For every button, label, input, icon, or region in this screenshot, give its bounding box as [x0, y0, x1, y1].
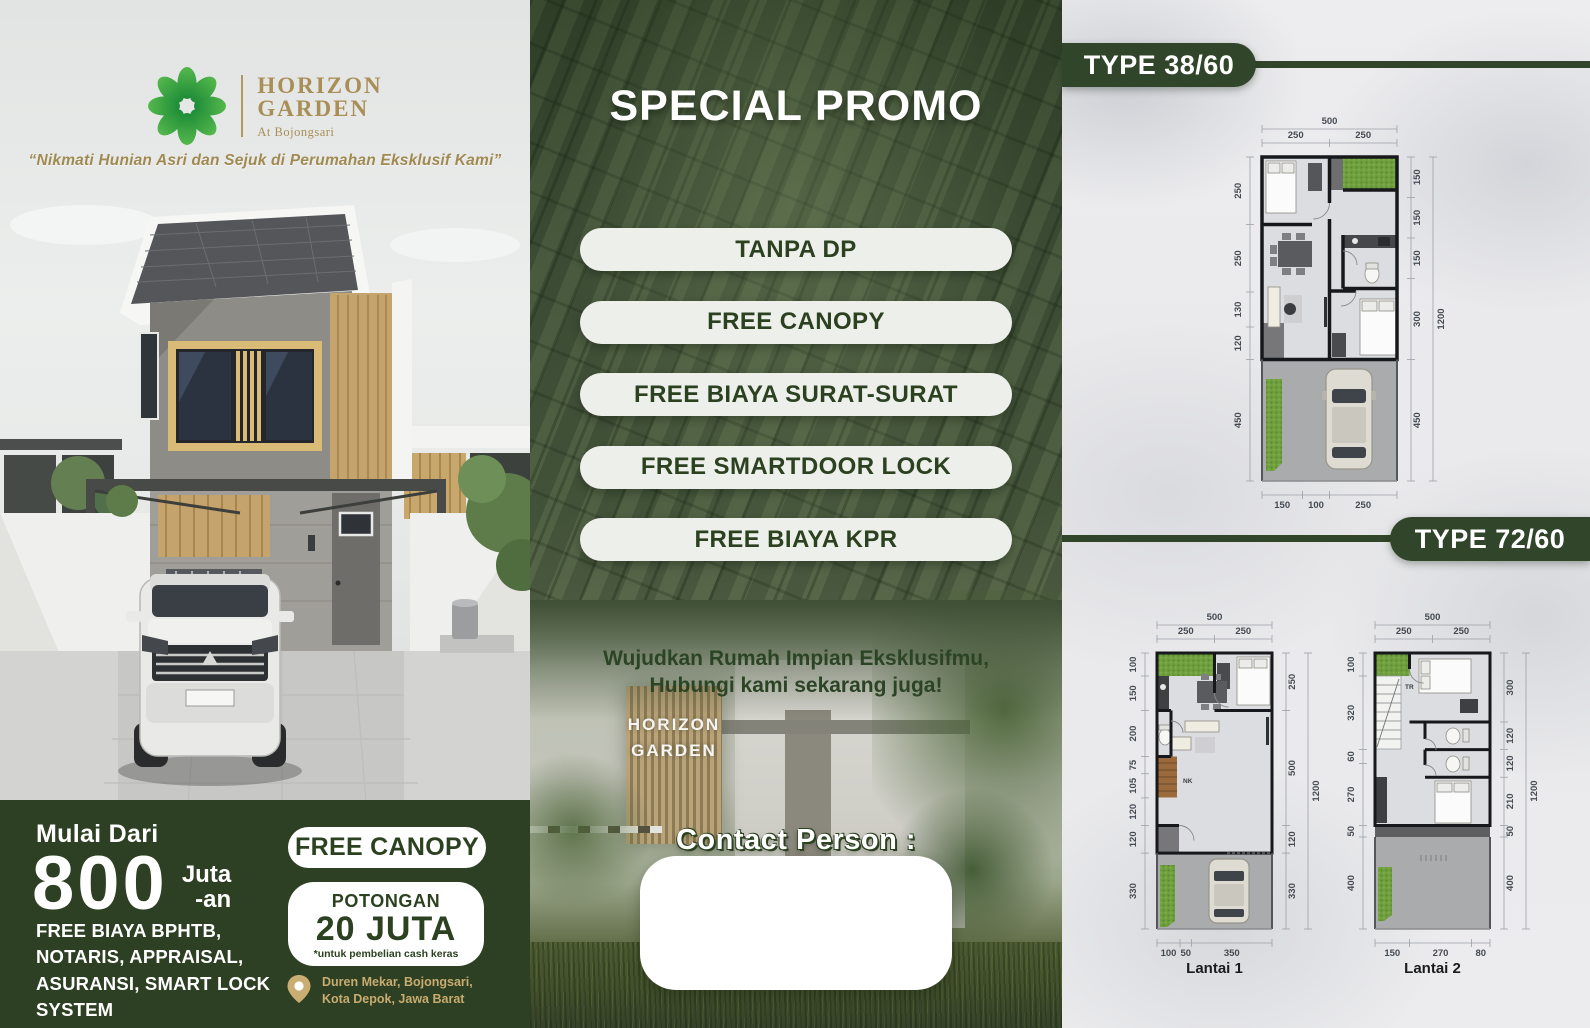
panel-left: HORIZON GARDEN At Bojongsari “Nikmati Hu…: [0, 0, 530, 1028]
dim-label: 330: [1287, 883, 1298, 899]
promo-pill-free-biaya-surat: FREE BIAYA SURAT-SURAT: [580, 373, 1012, 416]
price-unit-bottom: -an: [182, 887, 231, 912]
dim-label: 500: [1322, 116, 1338, 127]
dim-label: 120: [1233, 335, 1244, 351]
promo-pill-list: TANPA DP FREE CANOPY FREE BIAYA SURAT-SU…: [580, 228, 1012, 561]
panel-middle: HORIZON GARDEN SPECIAL PROMO TANPA DP FR…: [530, 0, 1062, 1028]
dim-label: 250: [1235, 626, 1251, 637]
dim-label: 150: [1384, 948, 1400, 959]
price-unit-top: Juta: [182, 861, 231, 888]
location-row: Duren Mekar, Bojongsari, Kota Depok, Jaw…: [286, 974, 492, 1008]
promo-title: SPECIAL PROMO: [530, 82, 1062, 131]
lantai-2-label: Lantai 2: [1404, 960, 1461, 977]
logo-text: HORIZON GARDEN At Bojongsari: [257, 74, 382, 139]
type-38-60-badge: TYPE 38/60: [1062, 43, 1256, 87]
free-canopy-pill: FREE CANOPY: [288, 827, 486, 868]
dim-label: 120: [1505, 755, 1516, 771]
promo-pill-tanpa-dp: TANPA DP: [580, 228, 1012, 271]
dim-label: 50: [1346, 826, 1357, 837]
dim-label: 250: [1396, 626, 1412, 637]
dim-label: 250: [1178, 626, 1194, 637]
logo-title-line1: HORIZON: [257, 74, 382, 97]
contact-card: [640, 856, 952, 990]
cta-text: Wujudkan Rumah Impian Eksklusifmu, Hubun…: [530, 645, 1062, 700]
flyer: HORIZON GARDEN At Bojongsari “Nikmati Hu…: [0, 0, 1590, 1028]
dim-label: 350: [1224, 948, 1240, 959]
dim-label: 200: [1128, 726, 1139, 742]
dim-label: 150: [1412, 250, 1423, 266]
dim-label: 320: [1346, 705, 1357, 721]
dim-label: 100: [1161, 948, 1177, 959]
contact-label: Contact Person :: [530, 824, 1062, 857]
brand-logo: HORIZON GARDEN At Bojongsari: [0, 66, 530, 146]
dim-label: 500: [1207, 612, 1223, 623]
badge-line-1: [1252, 61, 1590, 68]
floorplan-72-60-lantai-1: 500 250 250 100 150 200 75 105 120 120 3…: [1117, 609, 1337, 981]
dim-label: 250: [1288, 130, 1304, 141]
dim-label: 1200: [1436, 308, 1447, 329]
dim-label: 500: [1425, 612, 1441, 623]
dim-label: 250: [1233, 183, 1244, 199]
dim-label: 250: [1355, 500, 1371, 511]
dim-label: 1200: [1529, 780, 1540, 801]
location-pin-icon: [286, 974, 312, 1004]
cta-line1: Wujudkan Rumah Impian Eksklusifmu,: [530, 645, 1062, 672]
price-footer: Mulai Dari 800 Juta -an FREE BIAYA BPHTB…: [0, 800, 530, 1028]
dim-label: 105: [1128, 777, 1139, 794]
type-72-60-badge: TYPE 72/60: [1390, 517, 1590, 561]
dim-label: 300: [1412, 311, 1423, 327]
dim-label: 400: [1505, 875, 1516, 891]
dim-label: 100: [1308, 500, 1324, 511]
price-row: 800 Juta -an: [32, 846, 231, 922]
dim-label: 450: [1412, 412, 1423, 428]
dim-label: 250: [1355, 130, 1371, 141]
dim-label: 150: [1412, 210, 1423, 226]
discount-card: POTONGAN 20 JUTA *untuk pembelian cash k…: [288, 882, 484, 966]
logo-title-line2: GARDEN: [257, 97, 382, 120]
address-line2: Jawa Barat: [398, 992, 464, 1006]
cta-line2: Hubungi kami sekarang juga!: [530, 672, 1062, 699]
dim-label: 150: [1412, 169, 1423, 185]
address: Duren Mekar, Bojongsari, Kota Depok, Jaw…: [322, 974, 492, 1008]
logo-divider: [241, 75, 243, 137]
free-items-note: FREE BIAYA BPHTB, NOTARIS, APPRAISAL, AS…: [36, 918, 292, 1023]
price-value: 800: [32, 846, 168, 922]
dim-label: 80: [1476, 948, 1487, 959]
dim-label: 270: [1346, 787, 1357, 803]
dim-label: 270: [1433, 948, 1449, 959]
dim-label: 250: [1287, 674, 1298, 690]
dim-label: 100: [1128, 657, 1139, 673]
dim-label: 75: [1128, 759, 1139, 770]
promo-pill-free-biaya-kpr: FREE BIAYA KPR: [580, 518, 1012, 561]
dim-label: 60: [1346, 751, 1357, 762]
discount-note: *untuk pembelian cash keras: [314, 948, 459, 960]
dim-label: 50: [1180, 948, 1191, 959]
stair-label: TR: [1405, 684, 1414, 691]
floorplan-38-60: 500 250 250 250 250 130 120 450 150 150 …: [1220, 111, 1460, 523]
panel-right: TYPE 38/60 TYPE 72/60 500: [1062, 0, 1590, 1028]
stair-label: NK: [1183, 778, 1193, 785]
dim-label: 330: [1128, 883, 1139, 899]
dim-label: 250: [1233, 250, 1244, 266]
dim-label: 500: [1287, 760, 1298, 776]
dim-label: 120: [1505, 728, 1516, 744]
floorplan-72-60-lantai-2: 500 250 250 100 320 60 270 50 400 300 12…: [1335, 609, 1555, 981]
price-unit: Juta -an: [182, 862, 231, 912]
dim-label: 150: [1274, 500, 1290, 511]
logo-subtitle: At Bojongsari: [257, 126, 382, 139]
badge-line-2: [1062, 535, 1394, 542]
lantai-1-label: Lantai 1: [1186, 960, 1243, 977]
dim-label: 400: [1346, 875, 1357, 891]
promo-pill-free-canopy: FREE CANOPY: [580, 301, 1012, 344]
dim-label: 120: [1287, 831, 1298, 847]
promo-pill-free-smartdoor-lock: FREE SMARTDOOR LOCK: [580, 446, 1012, 489]
discount-title: POTONGAN: [332, 891, 440, 912]
dim-label: 120: [1128, 804, 1139, 820]
dim-label: 1200: [1311, 780, 1322, 801]
dim-label: 300: [1505, 680, 1516, 696]
dim-label: 100: [1346, 657, 1357, 673]
dim-label: 120: [1128, 831, 1139, 847]
dim-label: 130: [1233, 302, 1244, 318]
dim-label: 150: [1128, 685, 1139, 701]
discount-value: 20 JUTA: [316, 912, 457, 946]
dim-label: 210: [1505, 793, 1516, 809]
dim-label: 250: [1453, 626, 1469, 637]
logo-flower-icon: [147, 66, 227, 146]
dim-label: 450: [1233, 412, 1244, 428]
dim-label: 50: [1505, 826, 1516, 837]
house-photo: [0, 183, 530, 803]
tagline: “Nikmati Hunian Asri dan Sejuk di Peruma…: [0, 152, 530, 170]
